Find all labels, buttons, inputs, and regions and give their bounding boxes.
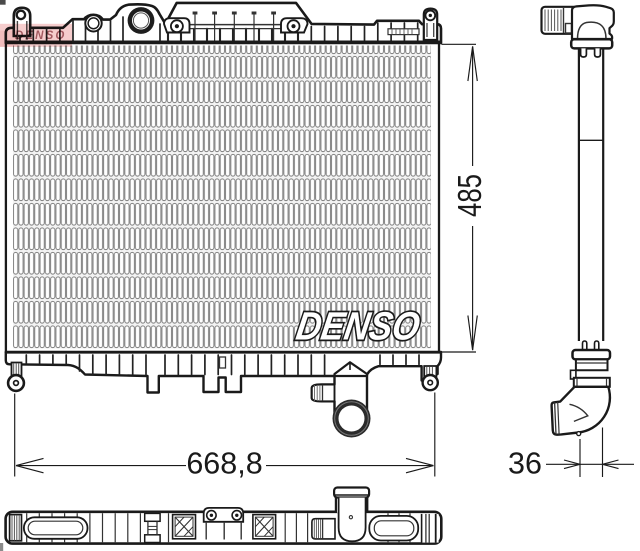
svg-text:668,8: 668,8 <box>186 447 262 481</box>
svg-text:485: 485 <box>452 174 489 217</box>
svg-text:36: 36 <box>508 446 542 480</box>
svg-text:DENSO: DENSO <box>293 304 423 348</box>
svg-text:DENSO: DENSO <box>15 30 66 42</box>
